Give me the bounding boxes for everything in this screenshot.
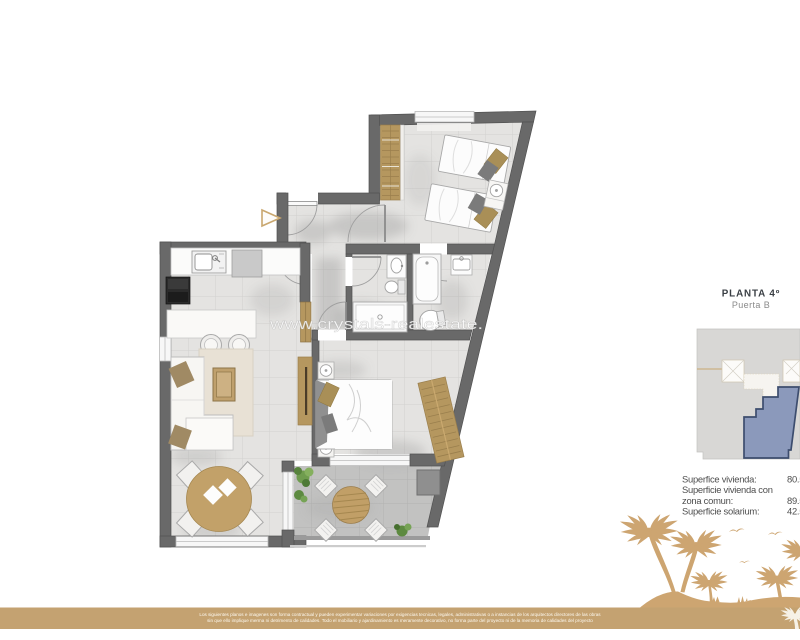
svg-text:PLANTA 4º: PLANTA 4º <box>722 289 781 300</box>
svg-text:Puerta B: Puerta B <box>732 300 770 310</box>
svg-text:Superficie vivienda con: Superficie vivienda con <box>682 484 773 495</box>
svg-text:Los siguientes planos e imagen: Los siguientes planos e imagenes son for… <box>199 612 601 617</box>
svg-text:42.5: 42.5 <box>787 506 800 517</box>
svg-text:Superficie solarium:: Superficie solarium: <box>682 506 759 517</box>
svg-text:www.crystals-realestate.: www.crystals-realestate. <box>269 316 483 333</box>
svg-text:Superfice vivienda:: Superfice vivienda: <box>682 474 756 485</box>
svg-text:80.5: 80.5 <box>787 474 800 485</box>
svg-text:89.5: 89.5 <box>787 495 800 506</box>
svg-text:sin que ello implique merma ni: sin que ello implique merma ni detriment… <box>207 618 593 623</box>
svg-text:zona comun:: zona comun: <box>682 495 733 506</box>
